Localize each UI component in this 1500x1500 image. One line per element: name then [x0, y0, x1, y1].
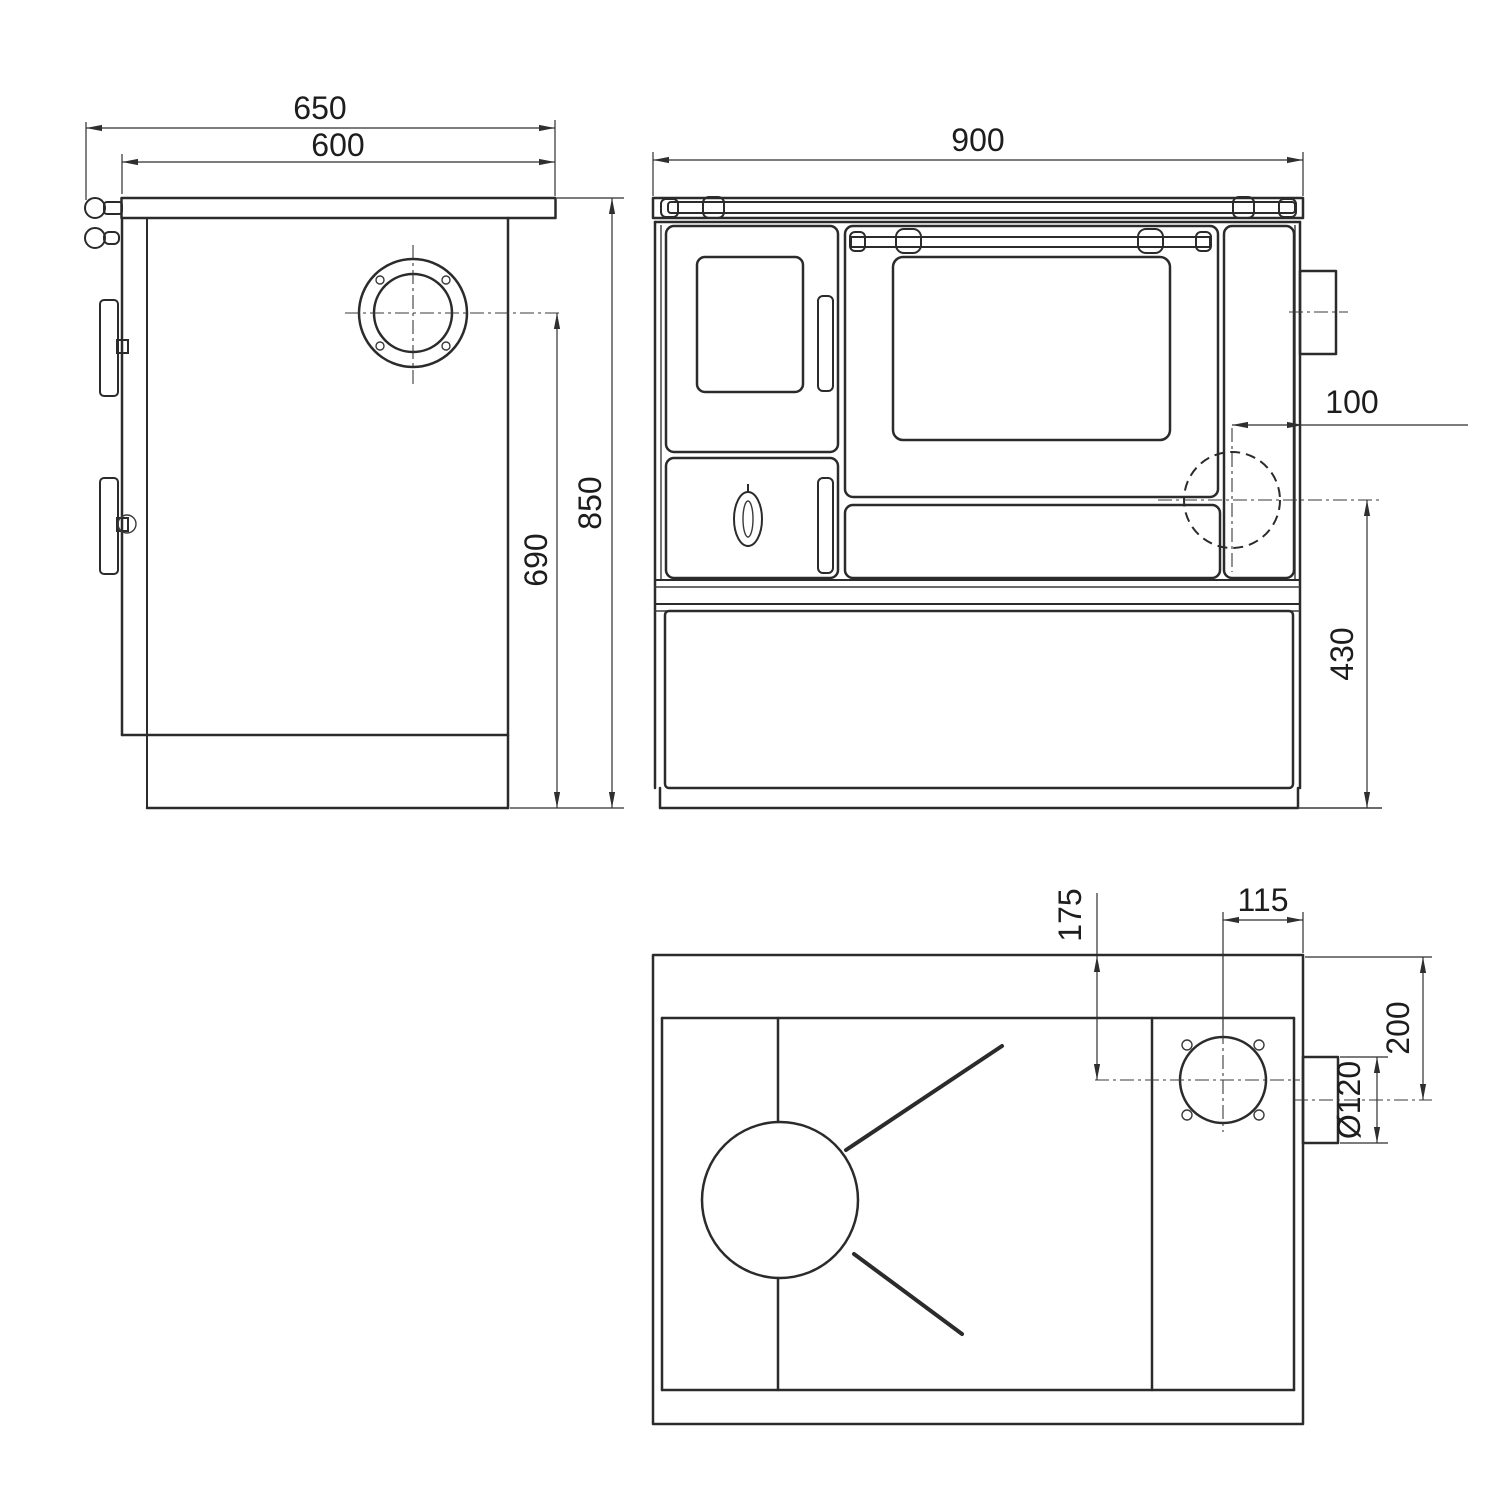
warming-drawer-front — [845, 505, 1220, 578]
dim-label-stub-from-back: 200 — [1380, 1001, 1416, 1054]
oven-window — [893, 257, 1170, 440]
side-view: 650 600 690 850 — [85, 90, 624, 808]
stove-technical-drawing: 650 600 690 850 — [0, 0, 1500, 1500]
front-view: 100 900 430 — [653, 122, 1468, 808]
side-flue-flange — [345, 245, 560, 385]
plate-seam-upper — [846, 1046, 1002, 1150]
dim-label-side-flue-height: 430 — [1324, 627, 1360, 680]
front-rail — [661, 197, 1296, 218]
firebox-handle — [818, 296, 833, 391]
ash-door — [666, 458, 838, 578]
side-body-outline — [122, 218, 508, 808]
rear-flue-stub — [1289, 271, 1348, 354]
dim-label-overall-width: 900 — [951, 122, 1004, 158]
right-side-panel — [1224, 226, 1294, 578]
dim-label-flue-from-back: 175 — [1052, 888, 1088, 941]
dim-label-flue-from-right: 115 — [1237, 882, 1288, 918]
air-control-knob — [734, 492, 762, 546]
top-view: 175 115 200 Ø120 — [653, 882, 1432, 1424]
hotplate-ring — [702, 1122, 858, 1278]
firebox-door — [666, 226, 838, 452]
cooktop-plate — [662, 1018, 1294, 1390]
side-worktop — [122, 198, 556, 218]
firebox-window — [697, 257, 803, 392]
plate-seam-lower — [854, 1254, 962, 1334]
dim-label-overall-depth: 650 — [293, 90, 346, 126]
dim-label-flue-center-height: 690 — [518, 533, 554, 586]
top-flue-collar — [1095, 1030, 1300, 1132]
rail-knob-icon — [85, 198, 122, 248]
top-outer-outline — [653, 955, 1303, 1424]
drawing-canvas: 650 600 690 850 — [0, 0, 1500, 1500]
dim-label-overall-height: 850 — [572, 476, 608, 529]
side-flue-knockout — [1158, 428, 1380, 572]
dim-label-flue-diameter: Ø120 — [1331, 1061, 1367, 1139]
plinth — [660, 788, 1298, 808]
dim-label-rear-flue-offset: 100 — [1325, 384, 1378, 420]
door-handle-icon — [100, 300, 136, 574]
top-dimensions: 175 115 200 Ø120 — [1052, 882, 1432, 1143]
base-drawer-front — [665, 611, 1293, 788]
oven-towel-bar — [850, 229, 1211, 253]
front-body-outline — [655, 222, 1382, 808]
oven-door — [845, 226, 1218, 497]
dim-label-worktop-depth: 600 — [311, 127, 364, 163]
ash-door-handle — [818, 478, 833, 573]
